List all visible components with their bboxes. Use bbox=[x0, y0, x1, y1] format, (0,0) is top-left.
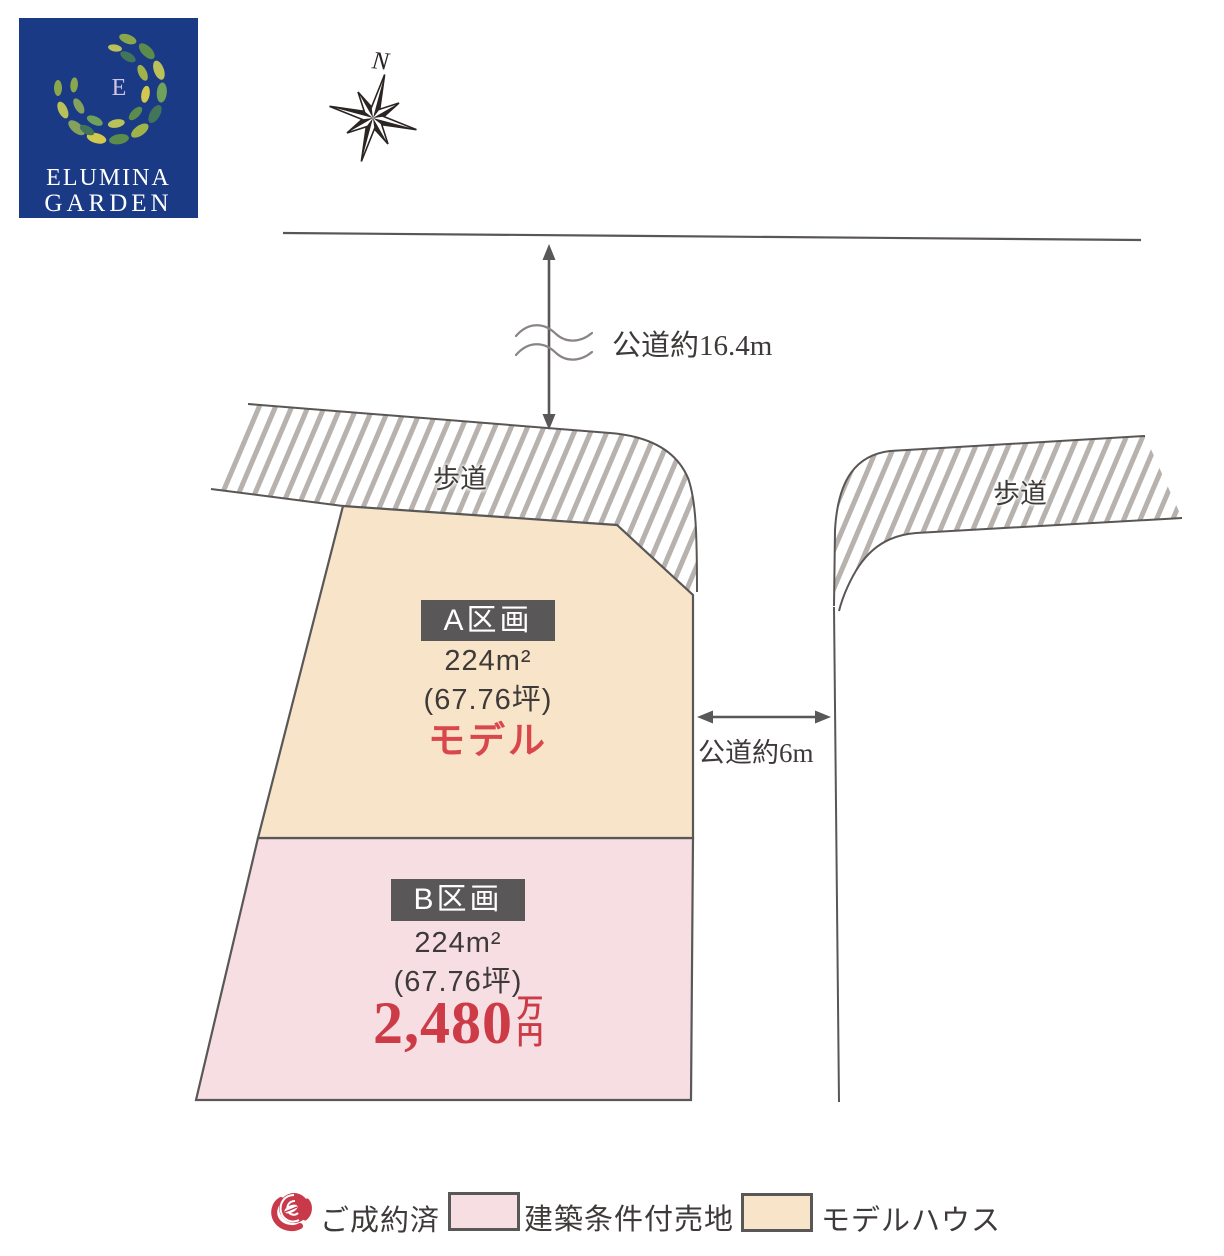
dimension-arrow-horizontal bbox=[697, 711, 831, 724]
lot-b-price-unit: 万 円 bbox=[517, 996, 543, 1049]
lot-b-price-unit-bottom: 円 bbox=[517, 1023, 543, 1050]
legend-conditional-land-label: 建築条件付売地 bbox=[524, 1196, 734, 1238]
lot-a-name-tag: A区画 bbox=[421, 600, 555, 641]
rose-icon bbox=[271, 1186, 315, 1232]
dimension-arrow-vertical bbox=[543, 244, 556, 430]
legend-sold-label: ご成約済 bbox=[320, 1197, 440, 1239]
elumina-garden-logo: E ELUMINA GARDEN bbox=[19, 18, 198, 218]
lot-a-area-sqm: 224m² bbox=[388, 645, 588, 678]
lot-b-price-unit-top: 万 bbox=[517, 996, 543, 1023]
sidewalk-right-label: 歩道 bbox=[993, 472, 1047, 511]
north-label: N bbox=[371, 47, 391, 77]
side-road-width-label: 公道約6m bbox=[698, 731, 814, 770]
legend-model-house-swatch bbox=[741, 1193, 813, 1232]
legend-model-house-label: モデルハウス bbox=[821, 1197, 1001, 1239]
break-wave-icon bbox=[516, 325, 592, 359]
legend-conditional-land-swatch bbox=[448, 1192, 520, 1231]
site-plan-flyer: E ELUMINA GARDEN N 公道約16.4m 公道約6m 歩道 歩道 … bbox=[0, 0, 1224, 1256]
main-road-edge-line bbox=[283, 233, 1141, 240]
compass-rose-icon bbox=[318, 63, 428, 173]
lot-b-area-sqm: 224m² bbox=[358, 927, 558, 960]
sidewalk-right-hatch bbox=[834, 436, 1182, 611]
sidewalk-left-label: 歩道 bbox=[433, 457, 487, 496]
logo-monogram: E bbox=[109, 75, 129, 102]
logo-brand-line1: ELUMINA bbox=[19, 165, 198, 192]
front-road-width-label: 公道約16.4m bbox=[612, 322, 772, 364]
lot-b-name-tag: B区画 bbox=[391, 879, 525, 921]
lot-b-price-number: 2,480 bbox=[373, 993, 513, 1053]
right-block-edge-line bbox=[834, 607, 839, 1102]
lot-b-price: 2,480 万 円 bbox=[338, 993, 578, 1053]
logo-brand-line2: GARDEN bbox=[19, 190, 198, 218]
lot-a-status: モデル bbox=[388, 710, 588, 764]
